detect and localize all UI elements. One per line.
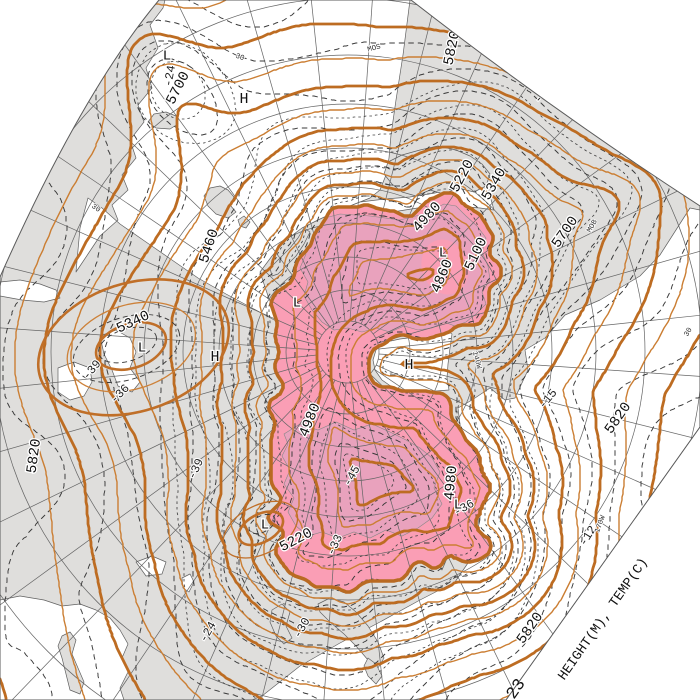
svg-text:L: L: [261, 518, 269, 534]
svg-text:4980: 4980: [442, 465, 461, 501]
svg-text:L: L: [293, 296, 301, 312]
svg-text:H: H: [404, 357, 413, 374]
svg-text:L: L: [138, 341, 146, 357]
svg-text:L: L: [163, 49, 171, 65]
svg-text:H: H: [239, 91, 248, 108]
svg-text:L: L: [454, 498, 462, 514]
svg-text:L: L: [439, 246, 447, 262]
svg-text:H: H: [210, 349, 219, 366]
